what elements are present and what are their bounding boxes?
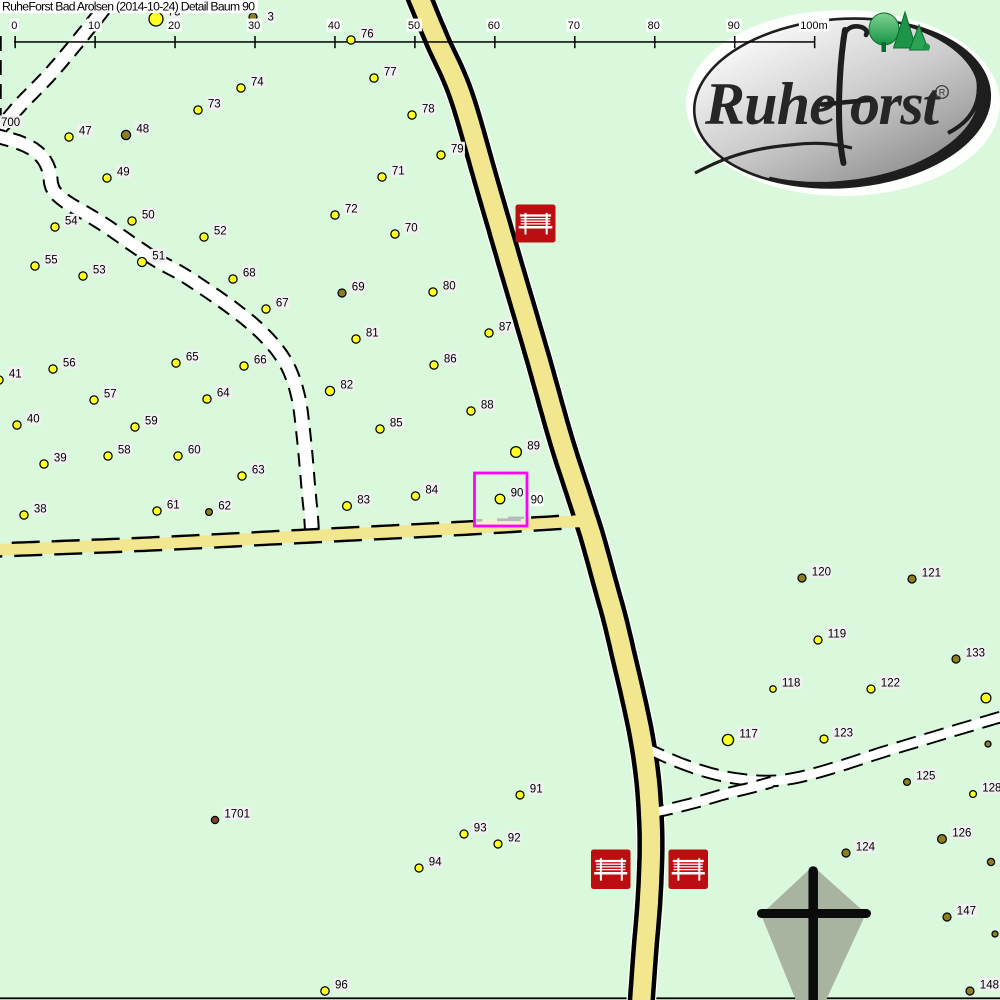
svg-text:80: 80 [443,280,456,292]
svg-text:128: 128 [982,782,1000,794]
svg-text:77: 77 [384,66,397,78]
svg-text:71: 71 [392,165,405,177]
svg-text:117: 117 [739,728,757,740]
svg-text:60: 60 [188,444,201,456]
svg-text:84: 84 [425,484,438,496]
svg-text:148: 148 [980,979,999,991]
svg-text:53: 53 [93,264,106,276]
svg-text:57: 57 [104,388,117,400]
svg-text:122: 122 [881,677,900,689]
svg-text:56: 56 [63,357,76,369]
svg-text:126: 126 [952,827,971,839]
svg-text:76: 76 [361,28,374,40]
svg-text:93: 93 [474,822,487,834]
svg-text:90: 90 [728,20,740,32]
svg-text:125: 125 [916,770,935,782]
svg-text:118: 118 [782,677,800,689]
svg-text:54: 54 [65,215,78,227]
svg-text:96: 96 [335,979,348,991]
svg-text:79: 79 [451,143,464,155]
svg-text:88: 88 [481,399,494,411]
svg-text:R: R [939,88,946,98]
svg-text:89: 89 [527,440,540,452]
svg-text:700: 700 [1,117,20,129]
svg-text:70: 70 [405,222,418,234]
svg-text:133: 133 [966,647,985,659]
svg-text:1701: 1701 [224,808,250,820]
svg-text:0: 0 [11,20,17,32]
svg-text:59: 59 [145,415,158,427]
svg-text:81: 81 [366,327,379,339]
svg-text:20: 20 [168,20,180,32]
svg-text:85: 85 [390,417,403,429]
svg-text:82: 82 [340,379,353,391]
svg-text:86: 86 [444,353,457,365]
svg-text:39: 39 [54,452,67,464]
svg-text:124: 124 [856,841,876,853]
svg-text:87: 87 [499,321,512,333]
svg-text:119: 119 [828,628,846,640]
svg-text:91: 91 [530,783,543,795]
svg-text:30: 30 [248,20,260,32]
svg-text:73: 73 [208,98,221,110]
svg-text:63: 63 [252,464,265,476]
svg-text:51: 51 [152,250,165,262]
svg-text:60: 60 [488,20,500,32]
svg-text:61: 61 [167,499,180,511]
svg-text:147: 147 [957,905,976,917]
svg-text:94: 94 [429,856,442,868]
svg-text:RuheForst Bad Arolsen (2014-10: RuheForst Bad Arolsen (2014-10-24) Detai… [2,0,255,14]
svg-text:90: 90 [511,487,524,499]
svg-text:67: 67 [276,297,289,309]
svg-text:90: 90 [531,494,544,506]
svg-text:72: 72 [345,203,358,215]
svg-text:62: 62 [218,500,231,512]
svg-text:40: 40 [27,413,40,425]
svg-text:40: 40 [328,20,340,32]
svg-text:69: 69 [352,281,365,293]
svg-text:55: 55 [45,254,58,266]
svg-text:48: 48 [136,123,149,135]
svg-text:74: 74 [251,76,264,88]
svg-text:47: 47 [79,125,92,137]
svg-text:52: 52 [214,225,227,237]
svg-text:120: 120 [812,566,831,578]
svg-text:50: 50 [408,20,420,32]
svg-text:121: 121 [922,567,941,579]
svg-text:49: 49 [117,166,130,178]
svg-text:50: 50 [142,209,155,221]
svg-text:83: 83 [357,494,370,506]
svg-text:123: 123 [834,727,853,739]
svg-text:78: 78 [422,103,435,115]
svg-text:58: 58 [118,444,131,456]
svg-text:66: 66 [254,354,267,366]
svg-text:38: 38 [34,503,47,515]
svg-text:68: 68 [243,267,256,279]
svg-text:100m: 100m [800,20,828,32]
svg-text:70: 70 [568,20,580,32]
svg-text:65: 65 [186,351,199,363]
svg-text:92: 92 [508,832,521,844]
svg-text:64: 64 [217,387,230,399]
svg-text:10: 10 [88,20,100,32]
svg-text:41: 41 [9,368,22,380]
svg-text:3: 3 [268,12,274,24]
svg-text:80: 80 [648,20,660,32]
svg-text:orst: orst [850,71,941,137]
svg-text:Ruhe: Ruhe [704,71,836,137]
